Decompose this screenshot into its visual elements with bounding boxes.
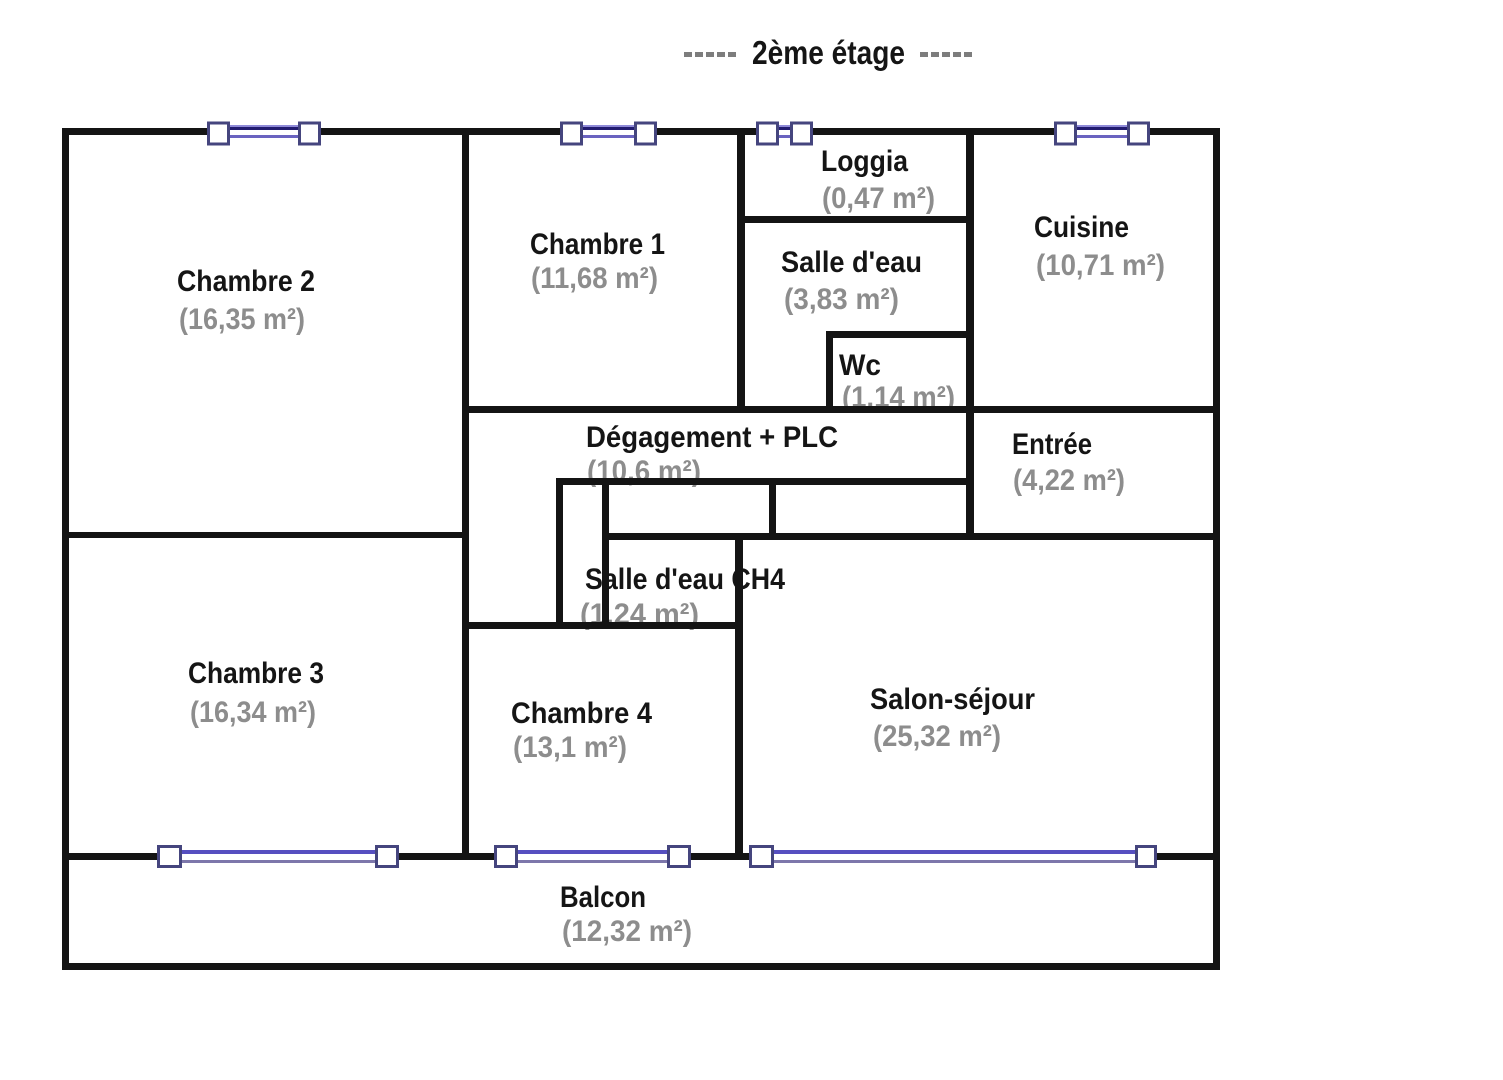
svg-text:Wc: Wc — [839, 349, 881, 382]
svg-text:(10,71 m²): (10,71 m²) — [1036, 249, 1165, 282]
svg-text:(0,47 m²): (0,47 m²) — [822, 182, 935, 215]
svg-text:Loggia: Loggia — [821, 145, 908, 178]
svg-text:Cuisine: Cuisine — [1034, 211, 1129, 244]
svg-text:(11,68 m²): (11,68 m²) — [531, 262, 658, 295]
svg-text:Salle d'eau CH4: Salle d'eau CH4 — [585, 563, 785, 596]
svg-text:Chambre 2: Chambre 2 — [177, 265, 315, 298]
svg-text:Chambre 3: Chambre 3 — [188, 657, 324, 690]
svg-text:(16,34 m²): (16,34 m²) — [190, 696, 316, 729]
svg-text:2ème étage: 2ème étage — [752, 34, 905, 71]
svg-text:Balcon: Balcon — [560, 881, 646, 914]
svg-text:Salon-séjour: Salon-séjour — [870, 683, 1035, 716]
svg-text:(25,32 m²): (25,32 m²) — [873, 720, 1001, 753]
svg-text:Chambre 1: Chambre 1 — [530, 228, 665, 261]
svg-text:(12,32 m²): (12,32 m²) — [562, 915, 692, 948]
svg-text:(16,35 m²): (16,35 m²) — [179, 303, 305, 336]
svg-text:(13,1 m²): (13,1 m²) — [513, 731, 627, 764]
svg-text:Entrée: Entrée — [1012, 428, 1092, 461]
svg-text:Dégagement + PLC: Dégagement + PLC — [586, 421, 838, 454]
svg-text:(3,83 m²): (3,83 m²) — [784, 283, 899, 316]
svg-text:Chambre 4: Chambre 4 — [511, 697, 652, 730]
svg-text:Salle d'eau: Salle d'eau — [781, 246, 922, 279]
svg-text:(4,22 m²): (4,22 m²) — [1013, 464, 1125, 497]
